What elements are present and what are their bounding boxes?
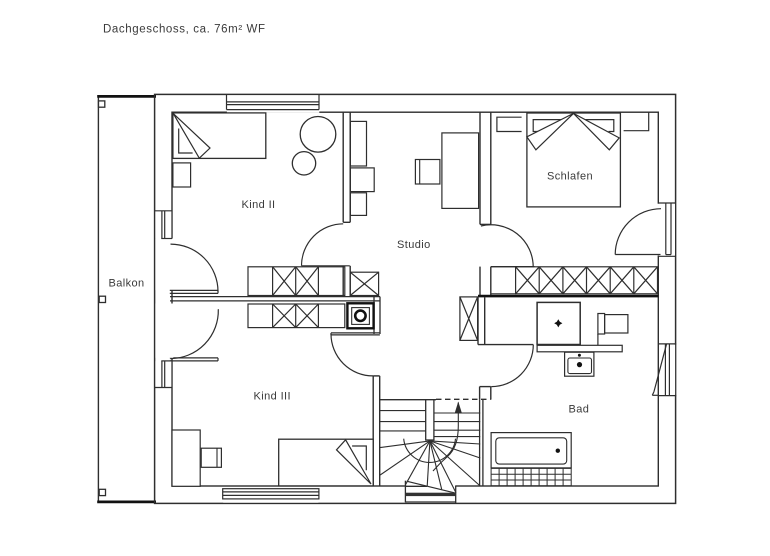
svg-text:Dachgeschoss, ca. 76m² WF: Dachgeschoss, ca. 76m² WF bbox=[103, 24, 266, 36]
svg-text:Kind II: Kind II bbox=[242, 199, 276, 211]
svg-text:Kind III: Kind III bbox=[254, 391, 291, 403]
svg-text:Bad: Bad bbox=[569, 404, 590, 416]
svg-text:Studio: Studio bbox=[397, 239, 431, 251]
svg-text:Balkon: Balkon bbox=[109, 278, 145, 290]
svg-text:Schlafen: Schlafen bbox=[547, 171, 593, 183]
